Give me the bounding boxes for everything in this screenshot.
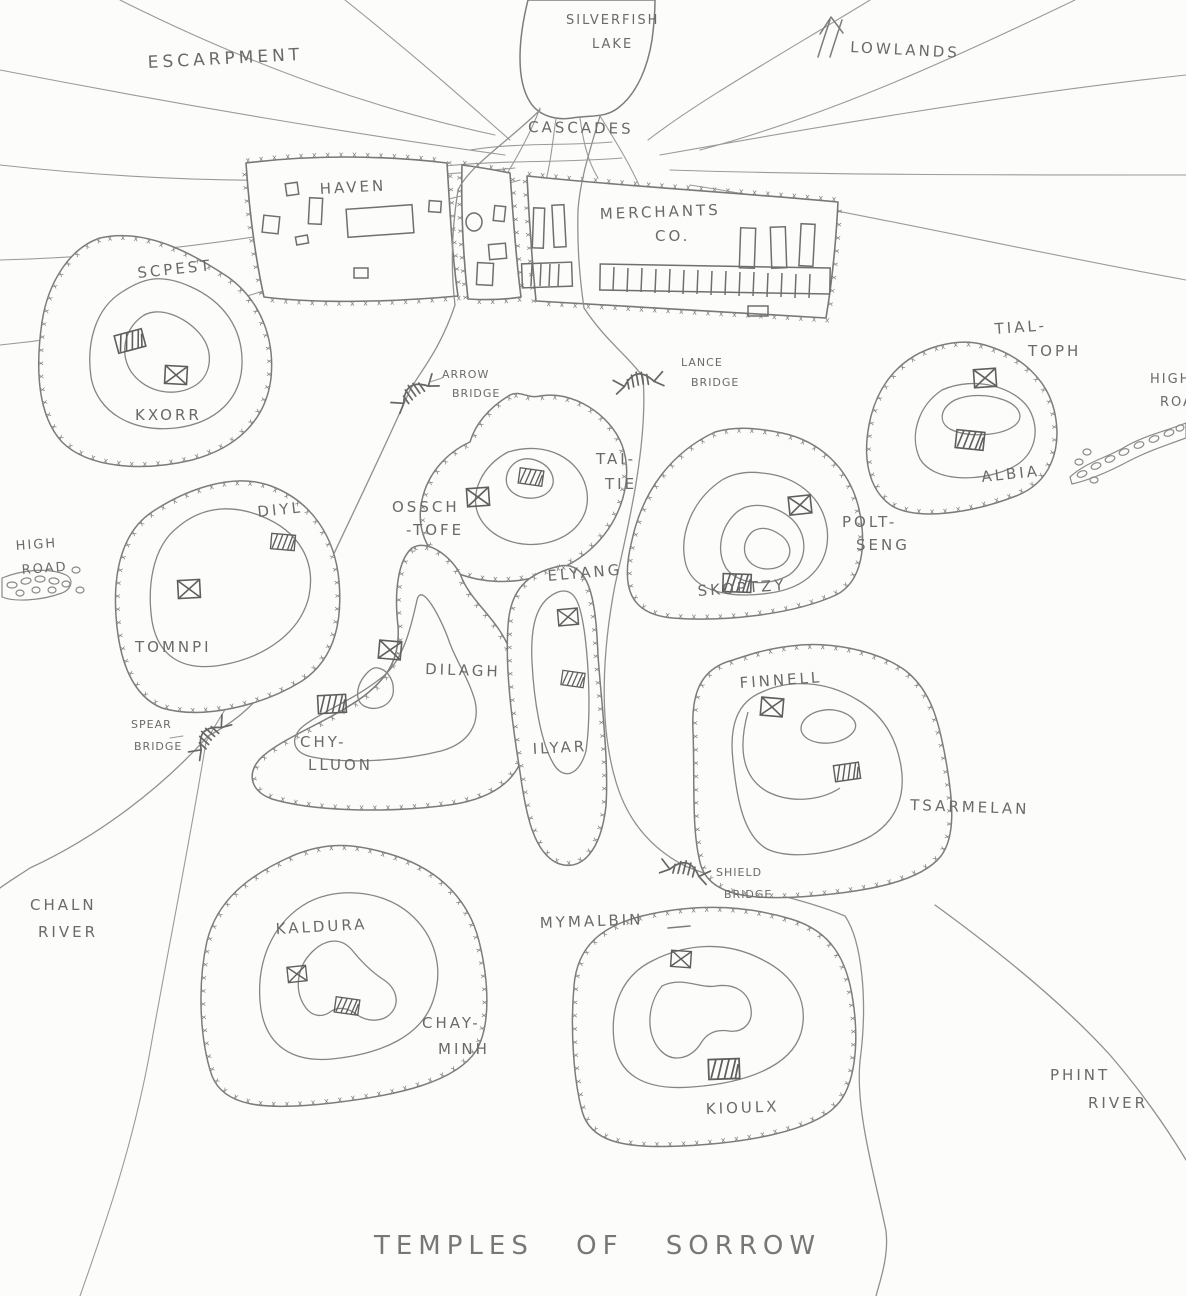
shield-bridge-label-line2: BRIDGE bbox=[724, 888, 772, 901]
high-road-west: HIGH ROAD bbox=[2, 536, 84, 600]
hill-kxorr: x x x x x x x x x x x x x x x x x x x x … bbox=[0, 0, 274, 468]
lowlands-pointer bbox=[818, 17, 843, 57]
spear-bridge: SPEAR BRIDGE bbox=[131, 712, 232, 761]
region-label-mymalbin: MYMALBIN bbox=[540, 910, 644, 932]
high-road-east: HIGH ROAD bbox=[1070, 372, 1186, 484]
arrow-bridge-label-line1: ARROW bbox=[442, 368, 489, 381]
phint-river-label-line1: PHINT bbox=[1050, 1066, 1110, 1084]
map-title: TEMPLES OF SORROW bbox=[373, 1231, 821, 1261]
hill-label-ilyar: ILYAR bbox=[532, 737, 587, 758]
hill-label-tie: TIE bbox=[604, 475, 637, 493]
hill-label-tomnpi: TOMNPI bbox=[134, 638, 212, 656]
cascades-label: CASCADES bbox=[528, 118, 634, 138]
high-road-west-label-line1: HIGH bbox=[15, 536, 57, 554]
temple-hatched-icon bbox=[318, 694, 347, 713]
region-label-dilagh: DILAGH bbox=[425, 660, 501, 681]
region-label-ossch: OSSCH bbox=[392, 498, 460, 516]
arrow-bridge-icon bbox=[389, 371, 440, 414]
merchants-label-line2: CO. bbox=[655, 227, 690, 245]
region-label-chay: CHAY- bbox=[422, 1014, 481, 1032]
hill-label-kioulx: KIOULX bbox=[706, 1097, 780, 1118]
shield-bridge-label-line1: SHIELD bbox=[716, 866, 762, 879]
escarpment-label: ESCARPMENT bbox=[147, 45, 303, 73]
arrow-bridge-label-line2: BRIDGE bbox=[452, 387, 500, 400]
chaln-river-label-line1: CHALN bbox=[30, 896, 97, 914]
lance-bridge: LANCE BRIDGE bbox=[613, 356, 740, 394]
silverfish-lake-label-line1: SILVERFISH bbox=[566, 13, 659, 28]
lowlands-label: LOWLANDS bbox=[850, 38, 961, 62]
region-label-toph: TOPH bbox=[1027, 342, 1081, 360]
region-label-seng: SENG bbox=[856, 536, 910, 554]
high-road-east-label-line1: HIGH bbox=[1150, 372, 1186, 387]
phint-river-label-line2: RIVER bbox=[1088, 1094, 1148, 1112]
hill-label-kxorr: KXORR bbox=[135, 406, 202, 424]
phint-river bbox=[935, 905, 1186, 1160]
arrow-bridge: ARROW BRIDGE bbox=[389, 368, 501, 414]
spear-bridge-label-line1: SPEAR bbox=[131, 718, 172, 731]
hill-label-tai: TAI- bbox=[595, 450, 636, 468]
silverfish-lake-label-line2: LAKE bbox=[592, 37, 633, 52]
region-label-minh: MINH bbox=[438, 1040, 490, 1058]
hill-label-chy: CHY- bbox=[300, 733, 347, 751]
haven-label: HAVEN bbox=[319, 177, 386, 198]
lance-bridge-label-line1: LANCE bbox=[681, 356, 723, 369]
chaln-river-label-line2: RIVER bbox=[38, 923, 98, 941]
high-road-west-label-line2: ROAD bbox=[21, 560, 68, 578]
region-label-tofe: -TOFE bbox=[406, 521, 464, 539]
spear-bridge-label-line2: BRIDGE bbox=[134, 740, 182, 753]
region-label-polt: POLT- bbox=[842, 513, 897, 531]
hill-label-lluon: LLUON bbox=[308, 756, 373, 774]
map-canvas: x x x x x x x x x x x x x x x x x x x x … bbox=[0, 0, 1186, 1296]
region-label-tial: TIAL- bbox=[993, 316, 1047, 338]
lance-bridge-label-line2: BRIDGE bbox=[691, 376, 739, 389]
high-road-east-label-line2: ROAD bbox=[1160, 395, 1186, 410]
